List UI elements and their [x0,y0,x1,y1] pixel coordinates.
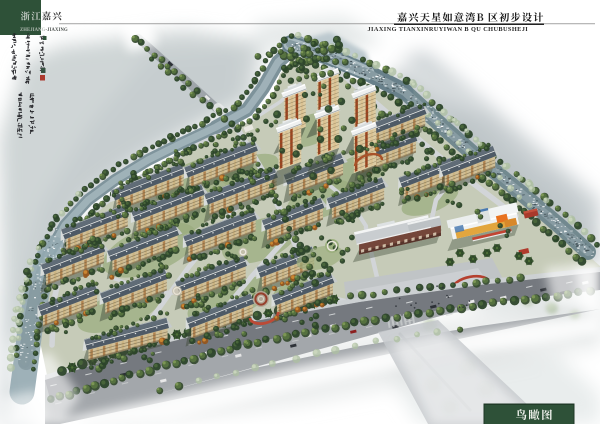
svg-text:JIAXING TIANXINRUYIWAN B QU CH: JIAXING TIANXINRUYIWAN B QU CHUBUSHEJI [368,26,529,33]
svg-text:ZHEJIANG-JIAXING: ZHEJIANG-JIAXING [20,28,68,33]
